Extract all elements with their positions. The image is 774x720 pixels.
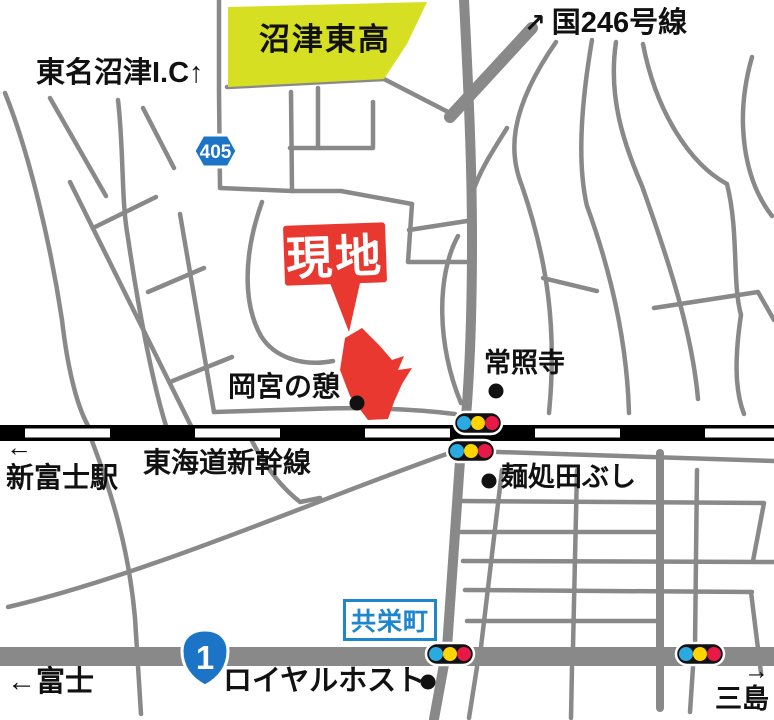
road-segment [465, 590, 752, 592]
road-segment [291, 92, 292, 191]
signal-red [478, 444, 492, 458]
tabushi-dot [482, 474, 497, 489]
kyoeicho-box: 共栄町 [343, 599, 437, 641]
road-segment [473, 128, 507, 192]
road-segment [654, 292, 774, 320]
tabushi-noodle-label: 麺処田ぶし [501, 463, 636, 491]
road-segment [50, 98, 106, 196]
mishima-direction-label: →三島 [715, 658, 769, 714]
signal-blue [457, 416, 471, 430]
joshoji-temple-label: 常照寺 [484, 349, 565, 377]
road-segment [143, 108, 174, 168]
road-segment [180, 214, 214, 412]
road-segment [118, 100, 167, 429]
road-segment [743, 57, 772, 216]
route-1-number: 1 [196, 639, 214, 676]
site-label: 現地 [285, 219, 385, 288]
shin-fuji-station-label: ←新富士駅 [6, 434, 118, 493]
road-segment [581, 40, 629, 413]
traffic-light [454, 412, 502, 434]
main-road-vertical [464, 0, 472, 417]
mishima-text: 三島 [715, 684, 769, 714]
shin-fuji-text: 新富士駅 [6, 462, 118, 493]
route-246-label: ↗国246号線 [524, 8, 687, 38]
road-segment [409, 221, 467, 230]
road-segment [290, 102, 373, 148]
tomei-numazu-ic-label: 東名沼津I.C↑ [36, 58, 204, 88]
road-segment [148, 268, 204, 292]
signal-red [457, 647, 471, 661]
traffic-light [447, 440, 495, 462]
signal-yellow [693, 647, 707, 661]
route-1-road [0, 647, 774, 666]
map: 405 1 東名沼津I.C↑ 沼津東高 ↗国246号線 現地 岡宮の憩 常照寺 … [0, 0, 774, 720]
signal-blue [429, 647, 443, 661]
site-marker [330, 283, 412, 420]
okamiya-dot [350, 396, 365, 411]
road-segment [571, 470, 577, 718]
road-segment [170, 357, 232, 382]
route-1-shield: 1 [182, 630, 228, 686]
site-balloon: 現地 [283, 222, 387, 286]
right-arrow-icon: → [715, 658, 769, 684]
signal-blue [450, 444, 464, 458]
left-arrow-icon: ← [6, 434, 118, 461]
northeast-arrow-icon: ↗ [524, 8, 546, 38]
tokaido-shinkansen-label: 東海道新幹線 [143, 448, 311, 477]
site-balloon-tail [330, 283, 360, 332]
road-segment [214, 408, 455, 414]
road-segment [468, 451, 774, 461]
road-segment [463, 561, 774, 562]
signal-blue [679, 647, 693, 661]
main-road-vertical-south [434, 446, 461, 719]
road-segment [469, 470, 502, 718]
road-segment [408, 204, 467, 262]
signal-yellow [443, 647, 457, 661]
kyoeicho-label: 共栄町 [351, 602, 429, 638]
signal-yellow [464, 444, 478, 458]
traffic-light [426, 643, 474, 665]
road-segment [70, 182, 194, 432]
royal-host-label: ロイヤルホスト [223, 666, 425, 696]
signal-yellow [471, 416, 485, 430]
joshoji-dot [489, 384, 504, 399]
route-246-text: 国246号線 [552, 7, 687, 39]
okamiya-label: 岡宮の憩 [228, 372, 340, 401]
signal-red [485, 416, 499, 430]
route-405-number: 405 [200, 142, 232, 163]
fuji-direction-label: ←富士 [7, 667, 94, 697]
road-segment [543, 278, 597, 291]
numazu-east-high-label: 沼津東高 [259, 24, 391, 57]
route-405-shield: 405 [194, 135, 237, 167]
